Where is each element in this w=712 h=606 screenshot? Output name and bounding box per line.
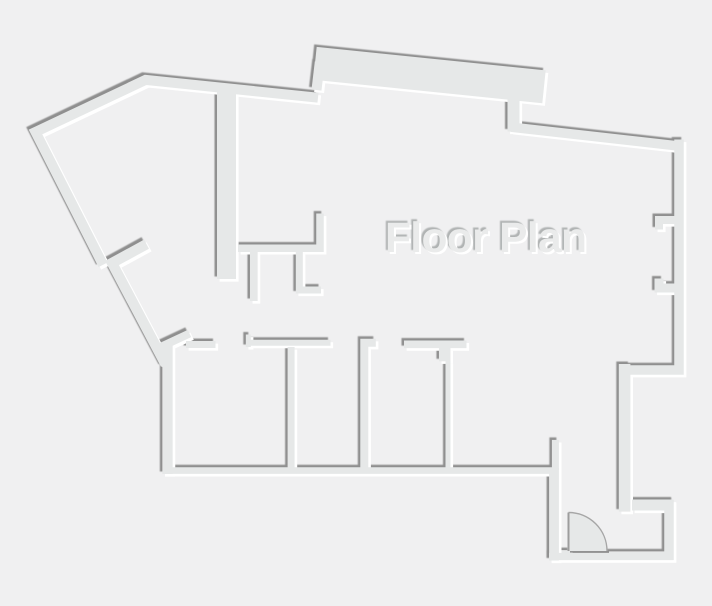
svg-text:Floor Plan: Floor Plan bbox=[385, 215, 586, 262]
